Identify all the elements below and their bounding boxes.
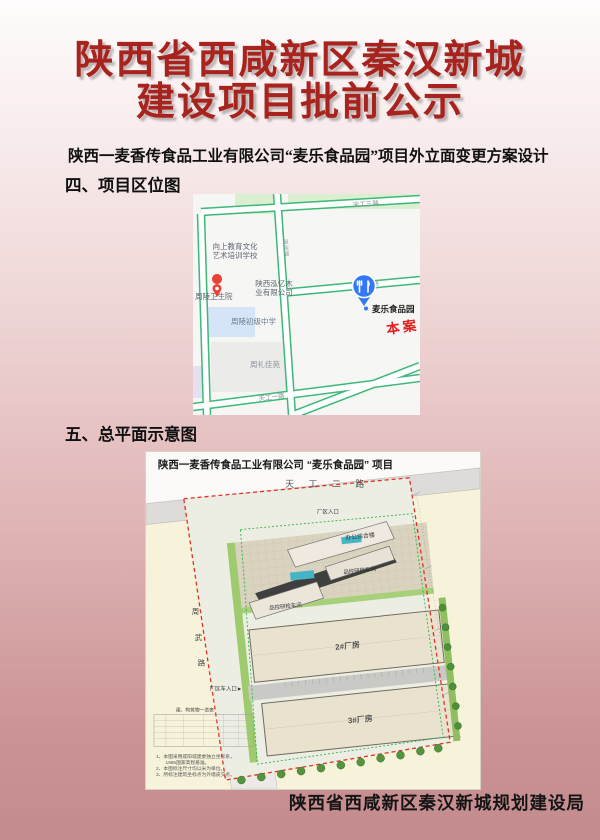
poi-school-training-line2: 艺术培训学校 [213,250,258,260]
plan-note-2: 2、本图标注尺寸均以米为单位。 [156,765,225,772]
plan-note-3: 3、所标注建筑坐标点为外墙皮交点。 [156,771,235,778]
notice-poster: 陕西省西咸新区秦汉新城 建设项目批前公示 陕西一麦香传食品工业有限公司“麦乐食品… [0,0,600,840]
section5-heading: 五、总平面示意图 [65,421,197,445]
site-plan: 办公综合楼 品控研检车间 品控研检车间 2#厂房 3#厂房 [145,451,481,790]
page-title-line2: 建设项目批前公示 [0,82,600,124]
poi-school-training-line1: 向上教育文化 [213,241,258,251]
poi-project-label: 麦乐食品园 [372,304,415,314]
plan-road-top-label: 天 工 二 路 [285,478,370,489]
building-list-table-title: 建、构筑物一览表 [176,706,214,713]
issuing-authority: 陕西省西咸新区秦汉新城规划建设局 [289,790,585,815]
plan-note-1b: 1985国家高程基准。 [156,759,210,766]
plan-note-1: 1、本图采用咸阳城建委独立坐标系， [156,753,235,760]
poi-residence-label: 周礼佳苑 [250,359,280,369]
project-subtitle: 陕西一麦香传食品工业有限公司“麦乐食品园”项目外立面变更方案设计 [68,144,568,166]
plan-road-left-char3: 路 [198,658,206,668]
poi-company-line1: 陕西泓亿木 [255,278,293,288]
location-map: 天工三路 天工二路 天工一路 周武路 向上教育文化 艺术培训学校 陕西泓亿木 业… [193,194,420,415]
entrance-top-label: 厂区入口 [317,509,339,516]
poi-company-line2: 业有限公司 [255,287,293,297]
plan-title: 陕西一麦香传食品工业有限公司 “麦乐食品园” 项目 [158,458,393,471]
poi-middle-school-label: 周陵初级中学 [231,316,276,326]
plan-road-left-char1: 周 [192,607,199,616]
page-title-line1: 陕西省西咸新区秦汉新城 [0,40,600,82]
entrance-side-label: 厂区车入口► [210,685,243,693]
poi-clinic-label: 周陵卫生院 [195,291,233,301]
plan-road-left-char2: 武 [195,632,203,642]
section4-heading: 四、项目区位图 [65,172,181,196]
page-title: 陕西省西咸新区秦汉新城 建设项目批前公示 [0,40,600,124]
